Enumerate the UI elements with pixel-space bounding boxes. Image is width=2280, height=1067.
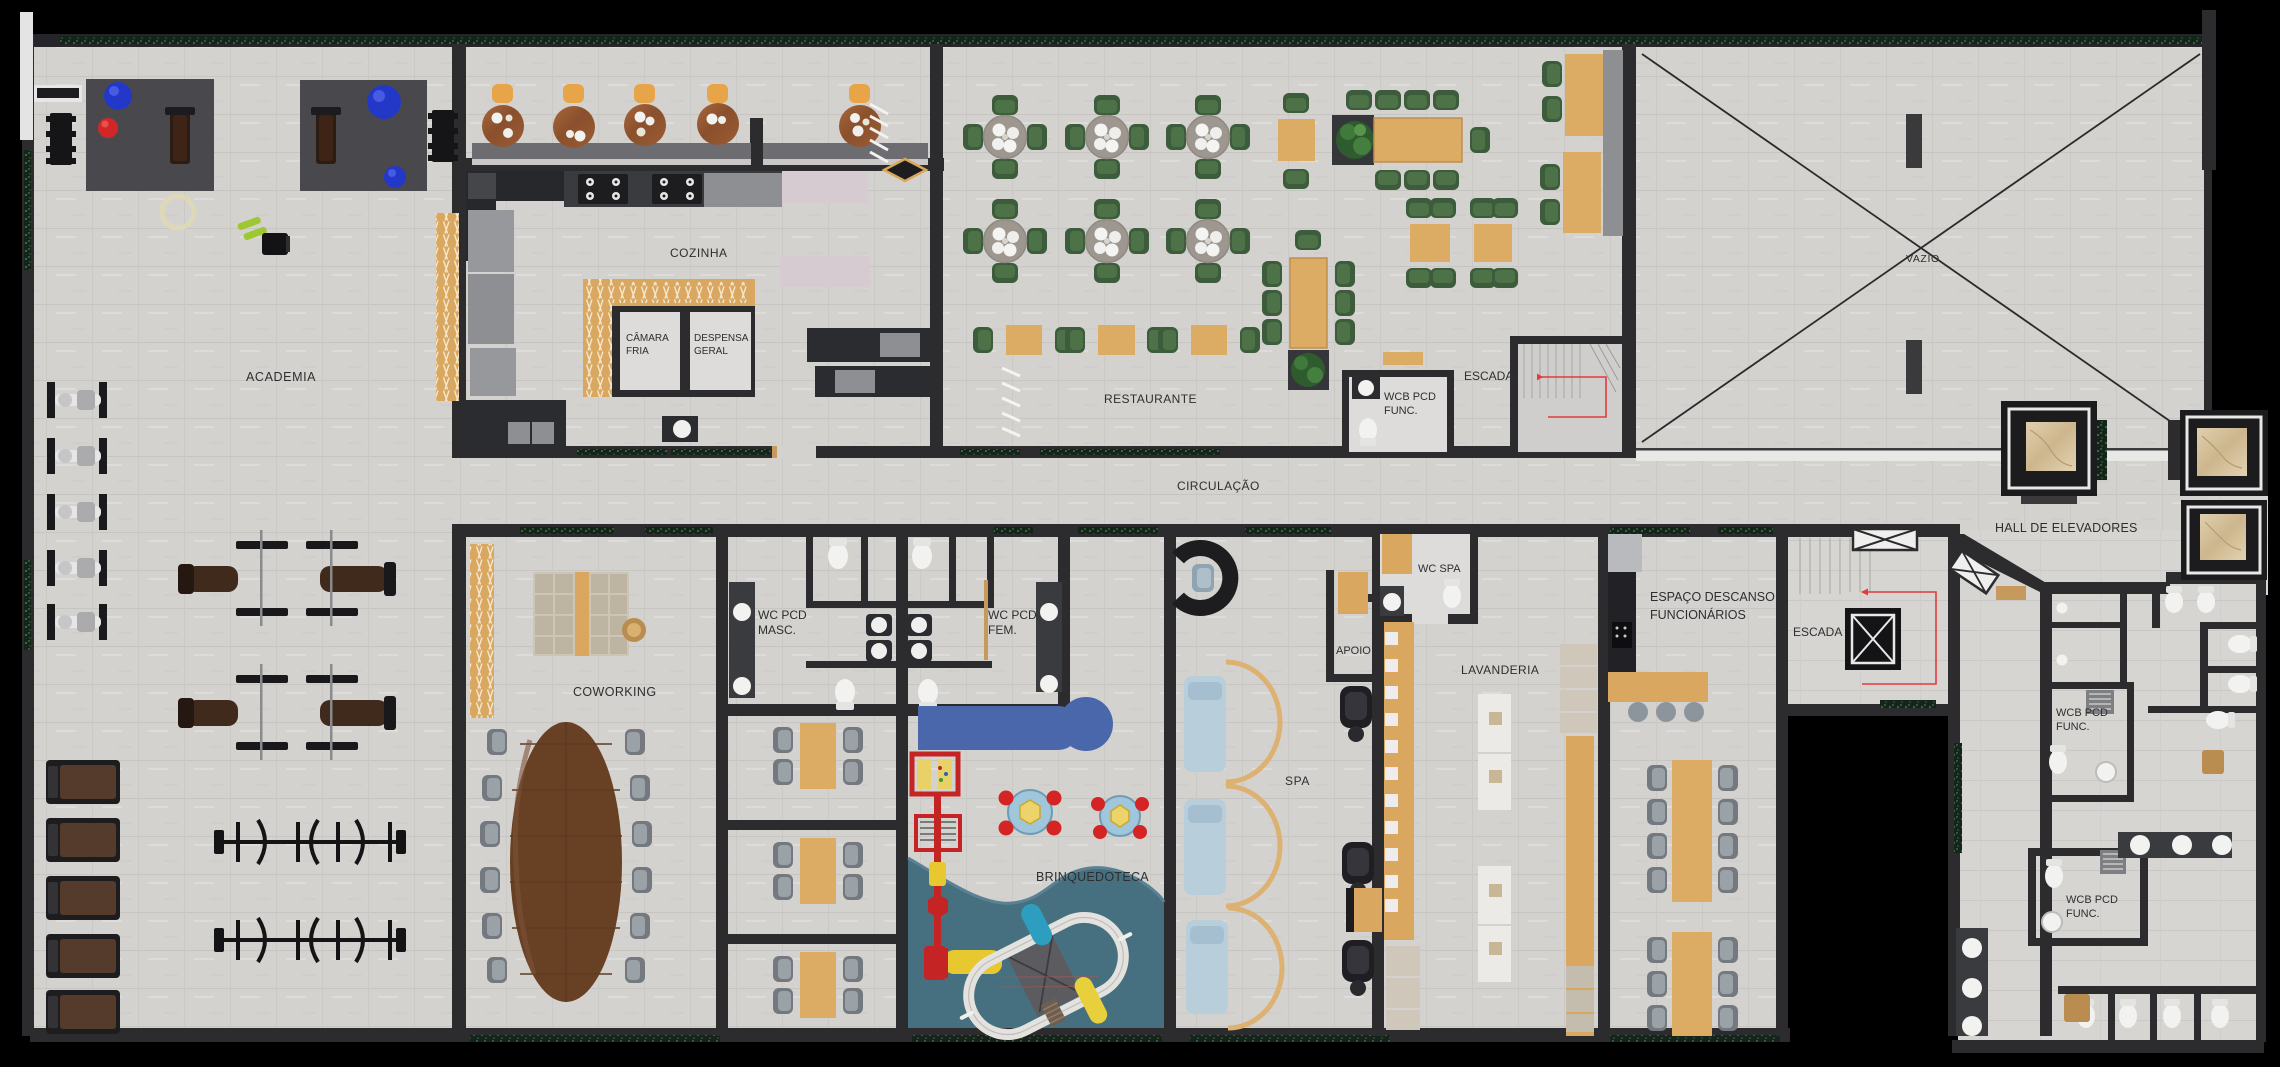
svg-text:APOIO: APOIO [1336, 645, 1371, 657]
svg-text:ESPAÇO DESCANSO: ESPAÇO DESCANSO [1650, 590, 1775, 604]
svg-text:CÂMARA: CÂMARA [626, 331, 669, 344]
svg-text:VAZIO: VAZIO [1906, 253, 1940, 265]
svg-text:WCB PCD: WCB PCD [2056, 707, 2108, 719]
svg-text:FUNC.: FUNC. [2066, 908, 2100, 920]
svg-text:WC PCD: WC PCD [988, 608, 1037, 622]
svg-text:WCB PCD: WCB PCD [2066, 894, 2118, 906]
svg-text:SPA: SPA [1285, 774, 1310, 788]
svg-text:DESPENSA: DESPENSA [694, 333, 749, 344]
svg-text:BRINQUEDOTECA: BRINQUEDOTECA [1036, 870, 1149, 884]
svg-text:WC SPA: WC SPA [1418, 563, 1461, 575]
svg-text:FUNC.: FUNC. [2056, 721, 2090, 733]
svg-text:CIRCULAÇÃO: CIRCULAÇÃO [1177, 479, 1260, 493]
svg-text:ACADEMIA: ACADEMIA [246, 370, 316, 384]
svg-text:ESCADA: ESCADA [1793, 625, 1842, 639]
svg-text:WC PCD: WC PCD [758, 608, 807, 622]
svg-text:WCB PCD: WCB PCD [1384, 391, 1436, 403]
svg-text:GERAL: GERAL [694, 346, 728, 357]
svg-text:RESTAURANTE: RESTAURANTE [1104, 392, 1197, 406]
svg-text:MASC.: MASC. [758, 623, 796, 637]
svg-text:FUNCIONÁRIOS: FUNCIONÁRIOS [1650, 607, 1746, 622]
svg-text:COWORKING: COWORKING [573, 685, 656, 699]
svg-text:LAVANDERIA: LAVANDERIA [1461, 663, 1539, 677]
svg-text:FUNC.: FUNC. [1384, 405, 1418, 417]
svg-text:COZINHA: COZINHA [670, 246, 728, 260]
svg-text:ESCADA: ESCADA [1464, 369, 1513, 383]
svg-text:HALL DE ELEVADORES: HALL DE ELEVADORES [1995, 521, 2138, 535]
svg-text:FEM.: FEM. [988, 623, 1017, 637]
svg-text:FRIA: FRIA [626, 346, 649, 357]
